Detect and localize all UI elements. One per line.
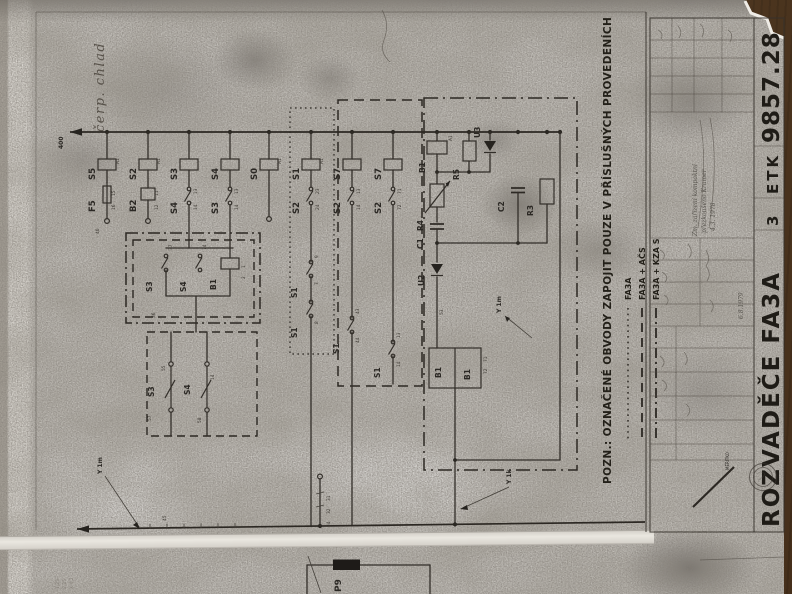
- terminal-circle: [146, 219, 151, 224]
- bottom-bus: 45 Y 1m Y 1k 31 32 34: [77, 457, 645, 532]
- coil-terminal: A1: [156, 158, 162, 164]
- terminal-number: 15: [111, 190, 117, 196]
- cable-label: Y 1k: [506, 468, 513, 485]
- column-S0: S0 A1: [250, 132, 283, 221]
- terminal-number: 16: [111, 204, 117, 210]
- terminal-number: 34: [326, 521, 332, 527]
- contact-label: S4: [179, 281, 188, 292]
- device-symbol: [427, 141, 447, 154]
- resistor-symbol: [540, 179, 554, 204]
- column-S2-B2: S2 A1 B2 11 12: [129, 132, 162, 223]
- diode-symbol: [431, 264, 443, 276]
- handwritten-note: čerp. chlad: [93, 42, 108, 132]
- column-S5-F5: S5 A1 F5 15 16 40: [88, 132, 121, 234]
- capacitor-label: C2: [497, 201, 506, 212]
- drawing-title: ROZVADĚČE FA3A: [757, 271, 785, 527]
- device-symbol: [221, 258, 239, 269]
- contact-symbol: [389, 340, 396, 358]
- resistor-label: R5: [452, 169, 461, 180]
- handwritten-entry: přezkoušeno Kramer: [701, 168, 708, 233]
- note-column: POZN.: OZNAČENÉ OBVODY ZAPOJIT POUZE V P…: [601, 17, 661, 484]
- terminal-number: 31: [326, 495, 332, 501]
- handwriting-squiggle: [382, 10, 390, 62]
- contact-label: S3: [147, 386, 156, 397]
- contact-label: S1: [290, 327, 299, 338]
- column-S7-S2-b: S7 S2 71 72: [374, 132, 403, 342]
- terminal-number: 14: [356, 204, 362, 210]
- diode-label: U3: [473, 127, 482, 138]
- relay-label: S3: [170, 168, 180, 180]
- pencil-line: [308, 556, 321, 593]
- pencil-note: X 4,2: [69, 577, 75, 589]
- contact-symbol: [307, 187, 314, 205]
- terminal-number: 43: [355, 308, 361, 314]
- contact-symbol: [196, 254, 203, 272]
- terminal-number: A1: [448, 135, 454, 141]
- group-right: B1 A1 R5 U3 R4 C: [416, 98, 577, 526]
- contact-symbol: [162, 254, 169, 272]
- dash-dot-border: [126, 233, 260, 323]
- relay-label: S5: [88, 168, 98, 180]
- diode-label: U2: [417, 275, 426, 286]
- bus-label: 400: [58, 136, 65, 149]
- wire-number: 45: [162, 515, 168, 521]
- relay-label: S1: [292, 168, 302, 180]
- contact-label: S4: [183, 384, 192, 395]
- contact-symbol: [348, 187, 355, 205]
- resistor-symbol: [463, 141, 476, 161]
- title-block: 9857.28 ETK 3 ROZVADĚČE FA3A Zm. zařízen…: [650, 18, 785, 560]
- contact-label: S1: [290, 287, 299, 298]
- handwritten-date: 6.8.1979: [738, 292, 745, 319]
- terminal-number: 14: [210, 374, 216, 380]
- terminal-number: 71: [397, 188, 403, 194]
- capacitor-label: C1: [416, 238, 425, 249]
- terminal-number: 23: [315, 188, 321, 194]
- terminal-number: 14: [396, 361, 402, 367]
- terminal-number: 53: [439, 309, 445, 315]
- wire-number: 40: [95, 228, 101, 234]
- top-bus: 400: [58, 128, 562, 149]
- legend-label: FA3A: [624, 277, 633, 300]
- legend-label: FA3A + KZA S: [652, 238, 661, 300]
- second-sheet: P9 1,25 2,25 X 4,2: [55, 556, 430, 594]
- terminal-number: 12: [154, 204, 160, 210]
- scale-slash: [693, 467, 734, 507]
- contact-label: S3: [145, 281, 154, 292]
- contact-label: S3: [211, 202, 221, 214]
- potentiometer-label: R4: [416, 220, 425, 231]
- terminal-number: 14: [234, 204, 240, 210]
- device-label: B1: [434, 367, 443, 378]
- sheet-number: 3: [764, 213, 782, 226]
- column-S1-S2: S1 A1 S2 23 24: [292, 132, 325, 262]
- terminal-number: 44: [355, 337, 361, 343]
- device-symbol: [141, 188, 155, 200]
- terminal-number: 24: [315, 204, 321, 210]
- terminal-circle: [318, 474, 323, 479]
- drawing-number: 9857.28: [759, 31, 785, 143]
- contact-symbol: [307, 260, 314, 278]
- relay-label: S4: [211, 168, 221, 180]
- pencil-note: 1,25: [55, 579, 61, 589]
- column-S3-S4: S3 S4 13 14: [170, 132, 199, 248]
- terminal-number: 72: [483, 368, 489, 374]
- relay-label: S2: [129, 168, 139, 180]
- contact-symbol: [348, 316, 355, 334]
- diode-symbol: [484, 141, 496, 153]
- contact-symbol: [226, 187, 233, 205]
- coil-terminal: A1: [277, 158, 283, 164]
- cable-label: Y 1m: [496, 296, 503, 314]
- terminal-number: 55: [161, 365, 167, 371]
- dashed-border: [338, 100, 422, 386]
- terminal-number: 58: [197, 417, 203, 423]
- contact-label: S2: [292, 202, 302, 214]
- contact-symbol: [185, 187, 192, 205]
- round-stamp: [750, 464, 777, 491]
- terminal-circle: [267, 217, 272, 222]
- terminal-number: 32: [326, 508, 332, 514]
- coil-terminal: A1: [319, 158, 325, 164]
- terminal-number: 9: [314, 255, 320, 258]
- contact-symbol: [389, 187, 396, 205]
- bus-arrowhead: [70, 128, 82, 135]
- terminal-number: 11: [154, 190, 160, 196]
- schematic-artwork: čerp. chlad 400 S5 A1: [0, 0, 792, 594]
- contact-label: S1: [332, 343, 341, 354]
- terminal-number: 72: [397, 204, 403, 210]
- device-label: B1: [463, 369, 472, 380]
- terminal-number: 8: [314, 321, 320, 324]
- device-label: B1: [418, 162, 427, 173]
- terminal-number: 7: [314, 282, 320, 285]
- terminal-number: 36: [151, 312, 157, 318]
- terminal-number: 74: [202, 244, 208, 250]
- sheet-frame: [36, 12, 646, 532]
- photo-of-schematic: čerp. chlad 400 S5 A1: [0, 0, 792, 594]
- terminal-circle: [105, 219, 110, 224]
- contact-label: S4: [170, 202, 180, 214]
- resistor-label: R3: [526, 205, 535, 216]
- terminal-number: 2: [241, 276, 247, 279]
- scale-field-label: MĚŘÍTKO: [725, 452, 730, 470]
- legend-label: FA3A + AČS: [636, 247, 647, 300]
- terminal-number: 57: [147, 415, 153, 421]
- device-label: B2: [129, 200, 139, 212]
- terminal-number: 13: [356, 188, 362, 194]
- relay-label: S7: [374, 168, 384, 180]
- device-label: B1: [209, 279, 218, 290]
- note-text: POZN.: OZNAČENÉ OBVODY ZAPOJIT POUZE V P…: [601, 17, 614, 484]
- fuse-label: F5: [88, 200, 98, 212]
- terminal-number: 13: [234, 188, 240, 194]
- handwritten-entry: 4.3. 1978: [710, 202, 717, 232]
- p9-label: P9: [334, 579, 344, 592]
- terminal-number: 37: [168, 244, 174, 250]
- terminal-number: 13: [193, 188, 199, 194]
- contact-label: S2: [374, 202, 384, 214]
- terminal-number: 71: [483, 356, 489, 362]
- terminal-number: 13: [396, 332, 402, 338]
- pencil-note: 2,25: [62, 579, 68, 589]
- org-code: ETK: [764, 153, 782, 194]
- relay-label: S0: [250, 168, 260, 180]
- bus-arrowhead: [77, 525, 89, 532]
- coil-terminal: A1: [115, 158, 121, 164]
- schematic-main: 400 S5 A1 F5 15 16: [58, 98, 645, 533]
- contact-symbol: [307, 300, 314, 318]
- contact-label: S1: [373, 367, 382, 378]
- dashed-border: [133, 240, 254, 317]
- cable-label: Y 1m: [97, 457, 104, 475]
- terminal-number: 14: [193, 204, 199, 210]
- p9-device-box: [333, 560, 360, 571]
- group-left-upper: S3 37 S4 74 B1 1 2 36: [126, 233, 260, 332]
- group-dashed: S1 43 44 S1 13 14: [332, 100, 422, 526]
- column-S4-S3: S4 S3 13 14: [211, 132, 240, 248]
- terminal-number: 1: [241, 265, 247, 268]
- group-left-lower: S3 55 57 S4 58 14: [147, 332, 257, 436]
